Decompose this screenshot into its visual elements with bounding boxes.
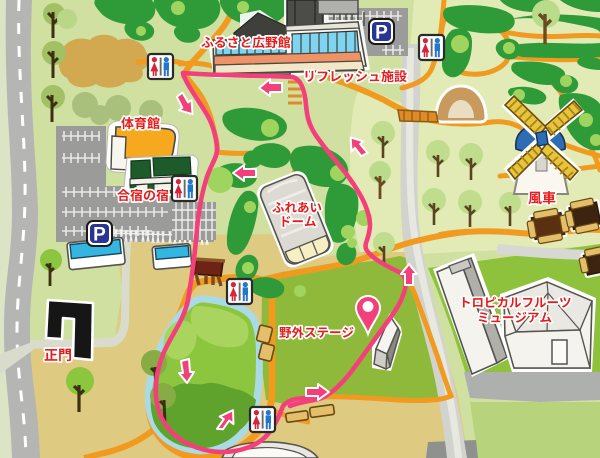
svg-text:P: P	[375, 23, 388, 44]
svg-text:P: P	[93, 225, 106, 246]
